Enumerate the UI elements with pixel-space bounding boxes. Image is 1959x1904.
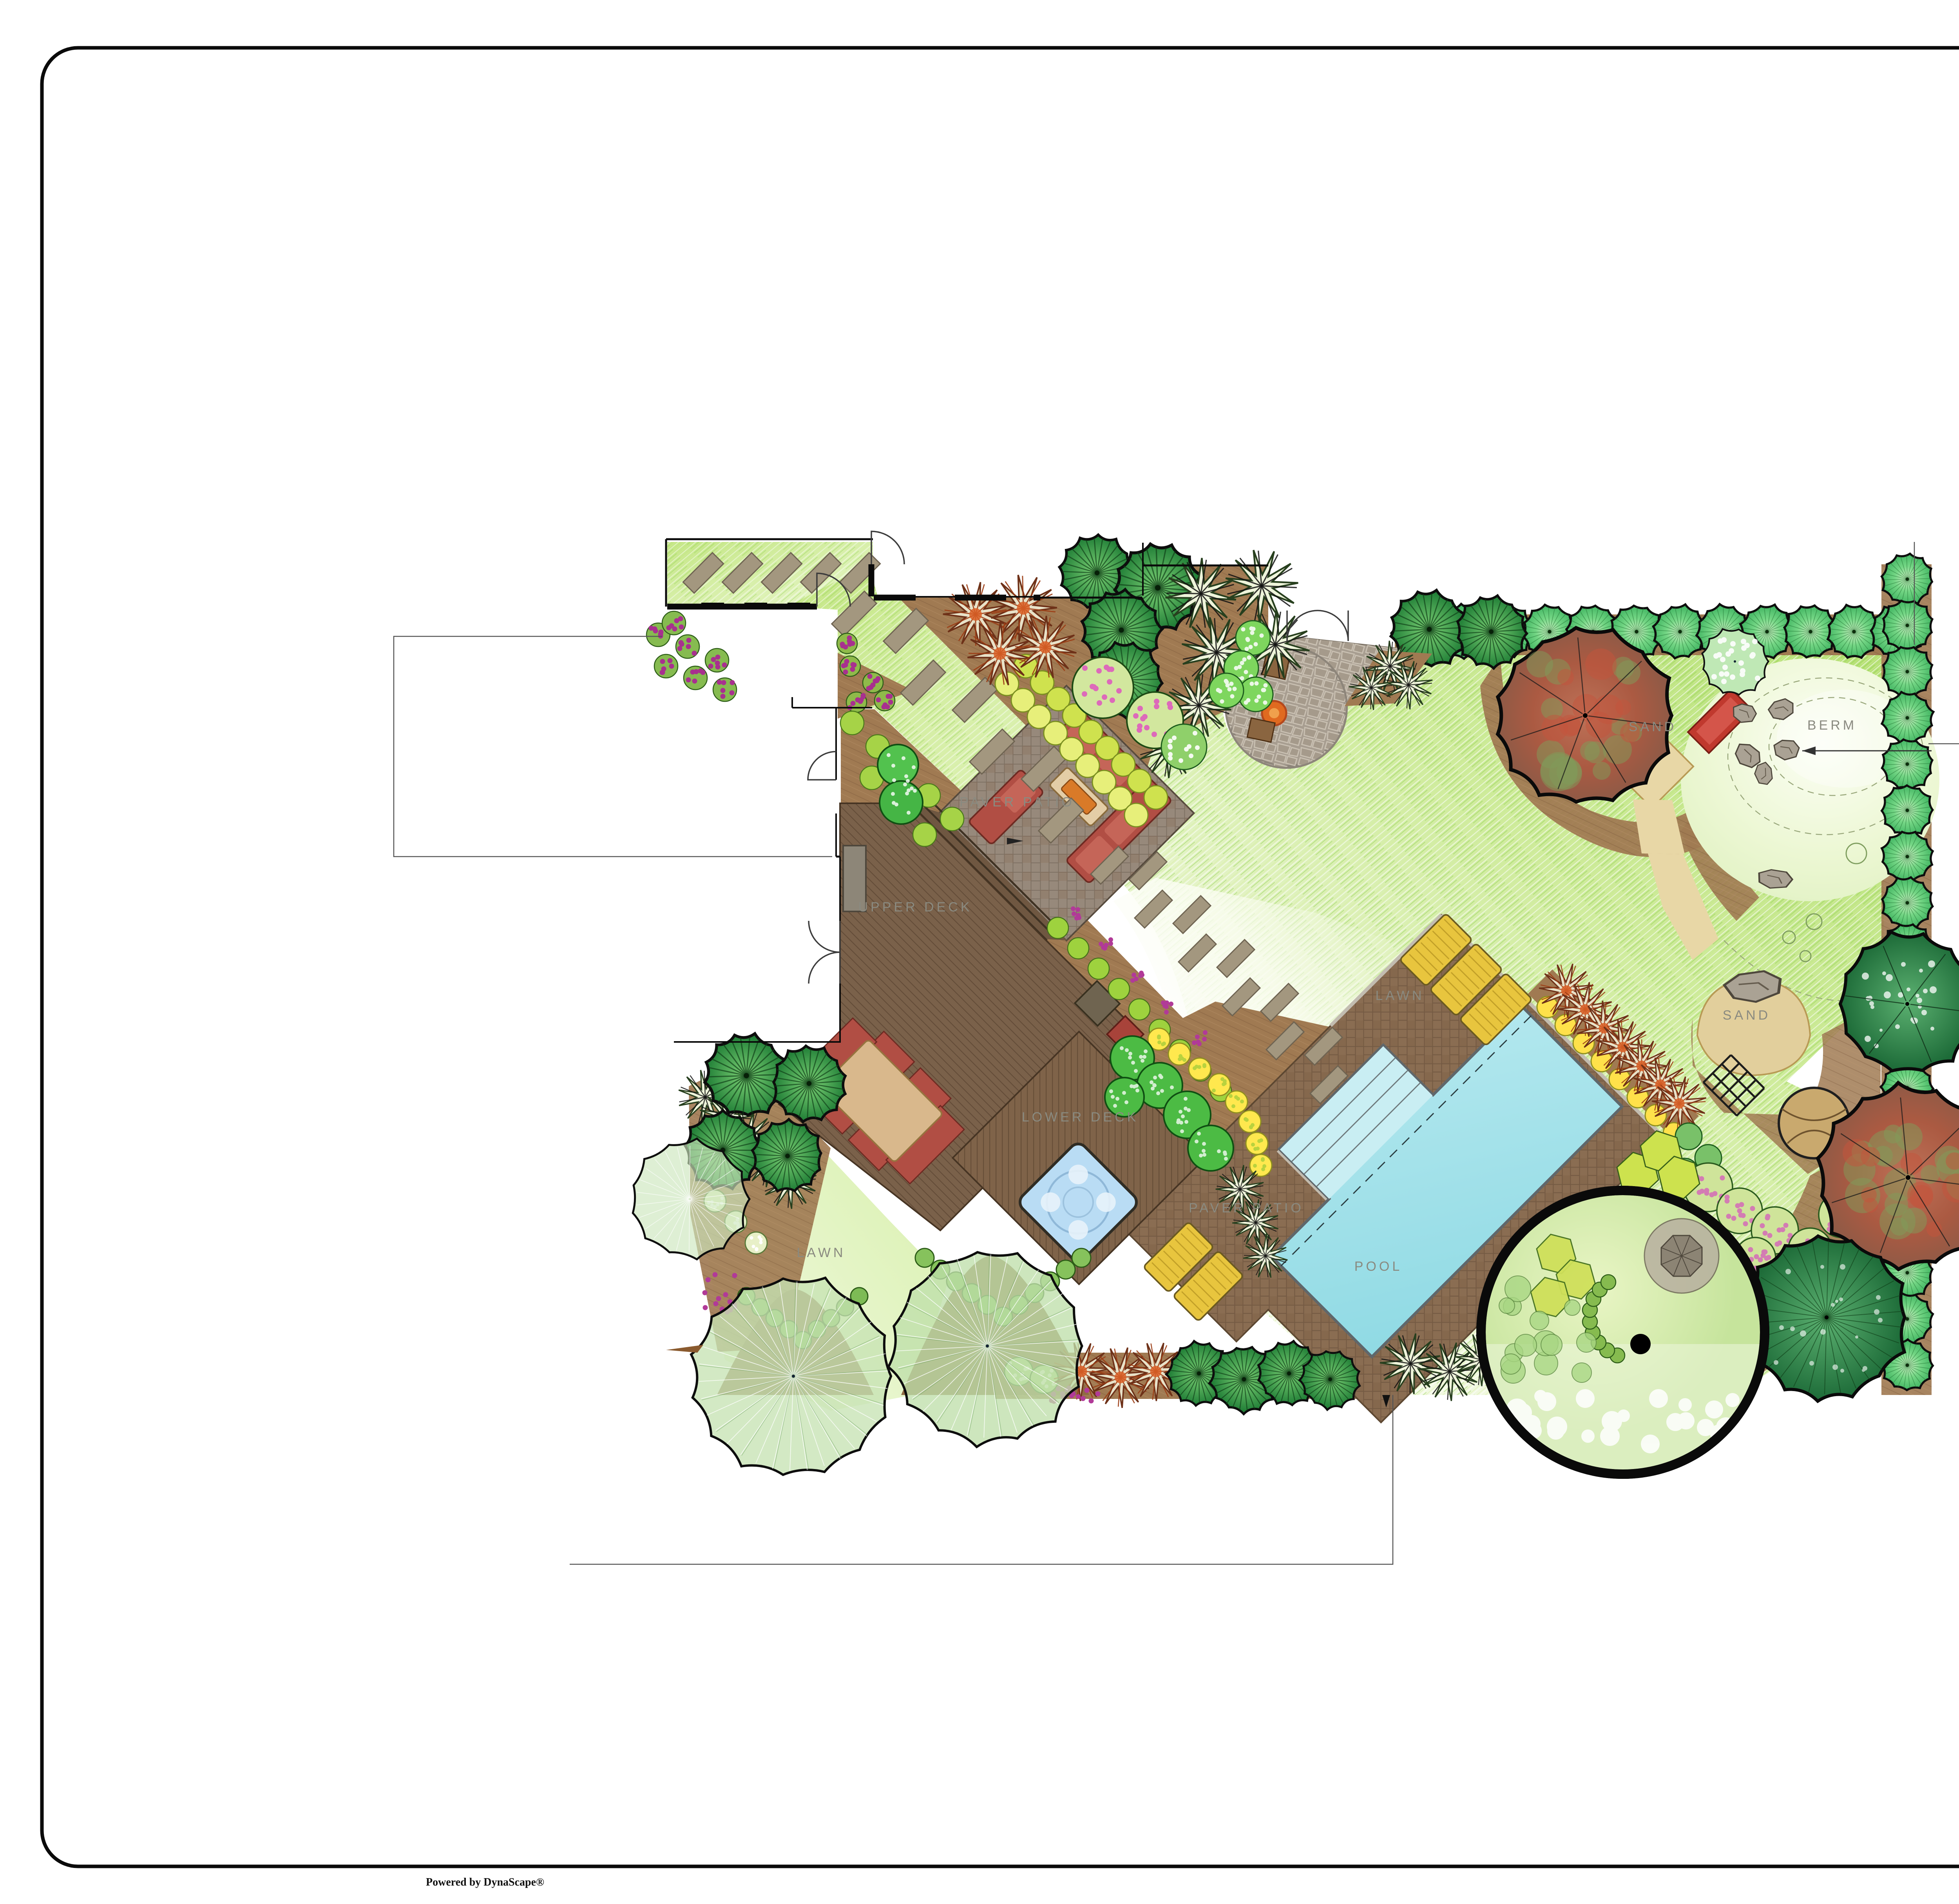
svg-text:LOWER DECK: LOWER DECK: [1022, 1110, 1139, 1125]
svg-text:Powered by DynaScape®: Powered by DynaScape®: [426, 1876, 544, 1888]
svg-text:SAND: SAND: [1723, 1008, 1771, 1023]
svg-text:LAWN: LAWN: [1376, 988, 1425, 1003]
svg-text:BERM: BERM: [1807, 718, 1857, 733]
svg-text:LAWN: LAWN: [797, 1245, 846, 1260]
svg-text:UPPER DECK: UPPER DECK: [858, 900, 972, 915]
svg-text:PAVER PATIO: PAVER PATIO: [1189, 1201, 1304, 1216]
svg-text:SAND: SAND: [1629, 719, 1677, 734]
svg-text:POOL: POOL: [1354, 1259, 1402, 1274]
svg-text:PAVER PATIO: PAVER PATIO: [960, 795, 1075, 810]
